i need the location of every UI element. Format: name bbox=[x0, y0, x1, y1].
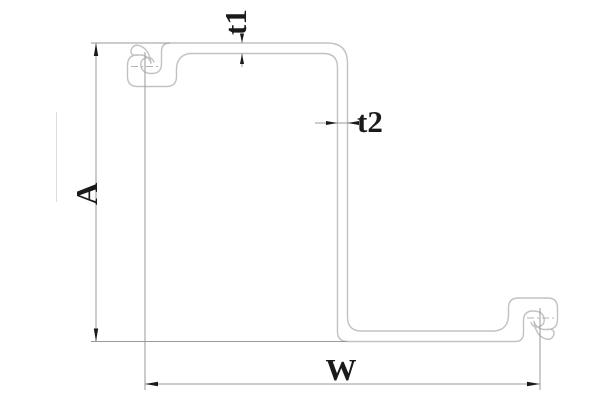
profile-outline bbox=[128, 43, 558, 342]
left-interlock-lip bbox=[131, 45, 151, 63]
dimension-A-label: A bbox=[69, 182, 104, 205]
dimension-t1-arrow-up bbox=[240, 54, 244, 65]
dimension-t2-arrow-right bbox=[326, 121, 338, 125]
drawing-canvas: A W t1 t2 bbox=[0, 0, 600, 400]
dimension-W-label: W bbox=[326, 352, 357, 387]
profile-surface-outer bbox=[141, 43, 558, 331]
dimension-W-arrow-left bbox=[145, 382, 158, 386]
dimension-t1-label: t1 bbox=[218, 9, 253, 35]
profile-surface-inner bbox=[128, 54, 545, 342]
dimension-A: A bbox=[69, 43, 347, 342]
right-interlock-lip bbox=[534, 322, 554, 340]
dimension-t1: t1 bbox=[218, 9, 253, 67]
dimension-A-arrow-up bbox=[94, 43, 98, 56]
dimension-t2-label: t2 bbox=[357, 104, 383, 139]
dimension-A-arrow-down bbox=[94, 329, 98, 342]
dimension-W: W bbox=[145, 52, 540, 390]
dimension-t2: t2 bbox=[315, 104, 383, 139]
drawing-page: A W t1 t2 bbox=[0, 0, 600, 400]
dimension-W-arrow-right bbox=[527, 382, 540, 386]
